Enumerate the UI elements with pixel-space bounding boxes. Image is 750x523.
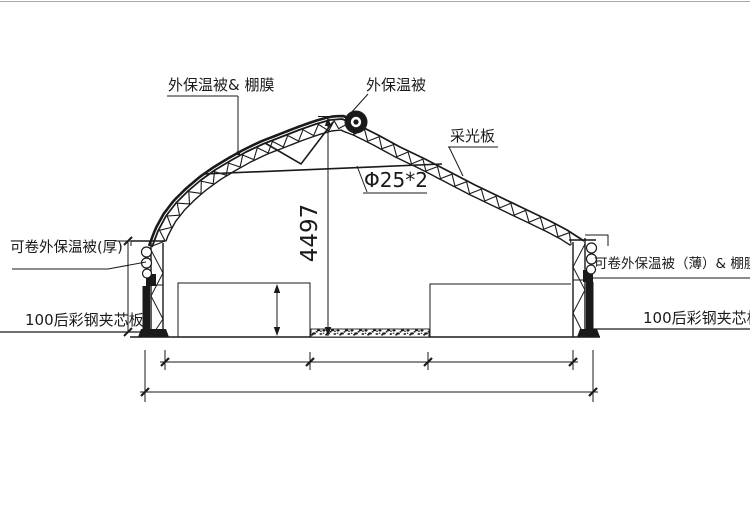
label-right-roll-blanket: 可卷外保温被（薄）& 棚膜 [592, 256, 750, 278]
left-roll-blanket-coil [142, 247, 152, 257]
left-bed-outline [178, 283, 310, 337]
bed-height-arrow [274, 284, 280, 336]
bottom-dimensions [140, 350, 598, 402]
left-wall-panel-text: 100后彩钢夹芯板 [25, 311, 144, 329]
left-roll-blanket-coil [143, 269, 152, 278]
label-tie-rod-spec: Φ25*2 [357, 166, 428, 193]
label-right-wall-panel: 100后彩钢夹芯板 [643, 309, 750, 327]
roof-blanket-line [149, 116, 358, 246]
ridge-height-value: 4497 [297, 204, 323, 263]
right-wall-panel-text: 100后彩钢夹芯板 [643, 309, 750, 327]
right-foundation [577, 329, 600, 337]
label-left-wall-panel: 100后彩钢夹芯板 [25, 311, 144, 329]
left-roll-blanket-text: 可卷外保温被(厚) [10, 239, 123, 256]
label-daylight-panel: 采光板 [448, 127, 498, 176]
left-wall-bracing [151, 250, 163, 337]
ridge-height-dimension: 4497 [297, 117, 341, 337]
left-foundation [138, 329, 169, 337]
interior-members [204, 122, 442, 174]
right-bed-outline [430, 284, 571, 337]
right-wall-bracing [573, 244, 585, 337]
roof-blanket-film-text: 外保温被& 棚膜 [168, 76, 274, 94]
blanket-roller [345, 111, 368, 134]
leader-line [12, 262, 146, 269]
right-roll-blanket-text: 可卷外保温被（薄）& 棚膜 [594, 256, 750, 272]
roof-blanket-text: 外保温被 [366, 76, 426, 94]
tie-rod-spec-text: Φ25*2 [364, 168, 428, 192]
daylight-panel-text: 采光板 [450, 127, 495, 145]
roller-axle [353, 119, 358, 124]
greenhouse-section-drawing: 4497 外保温被& 棚膜 外保温被 [0, 0, 750, 523]
right-sandwich-panel [586, 282, 594, 336]
leader-dot [237, 152, 241, 156]
drawing-page: 4497 外保温被& 棚膜 外保温被 [0, 0, 750, 523]
label-roof-blanket: 外保温被 [350, 76, 426, 114]
labels: 外保温被& 棚膜 外保温被 采光板 Φ25*2 可卷外保温被(厚) 100后彩钢… [10, 76, 750, 329]
interior-structures [178, 283, 571, 337]
right-roll-blanket-coil [587, 243, 597, 253]
right-wall [569, 235, 608, 337]
